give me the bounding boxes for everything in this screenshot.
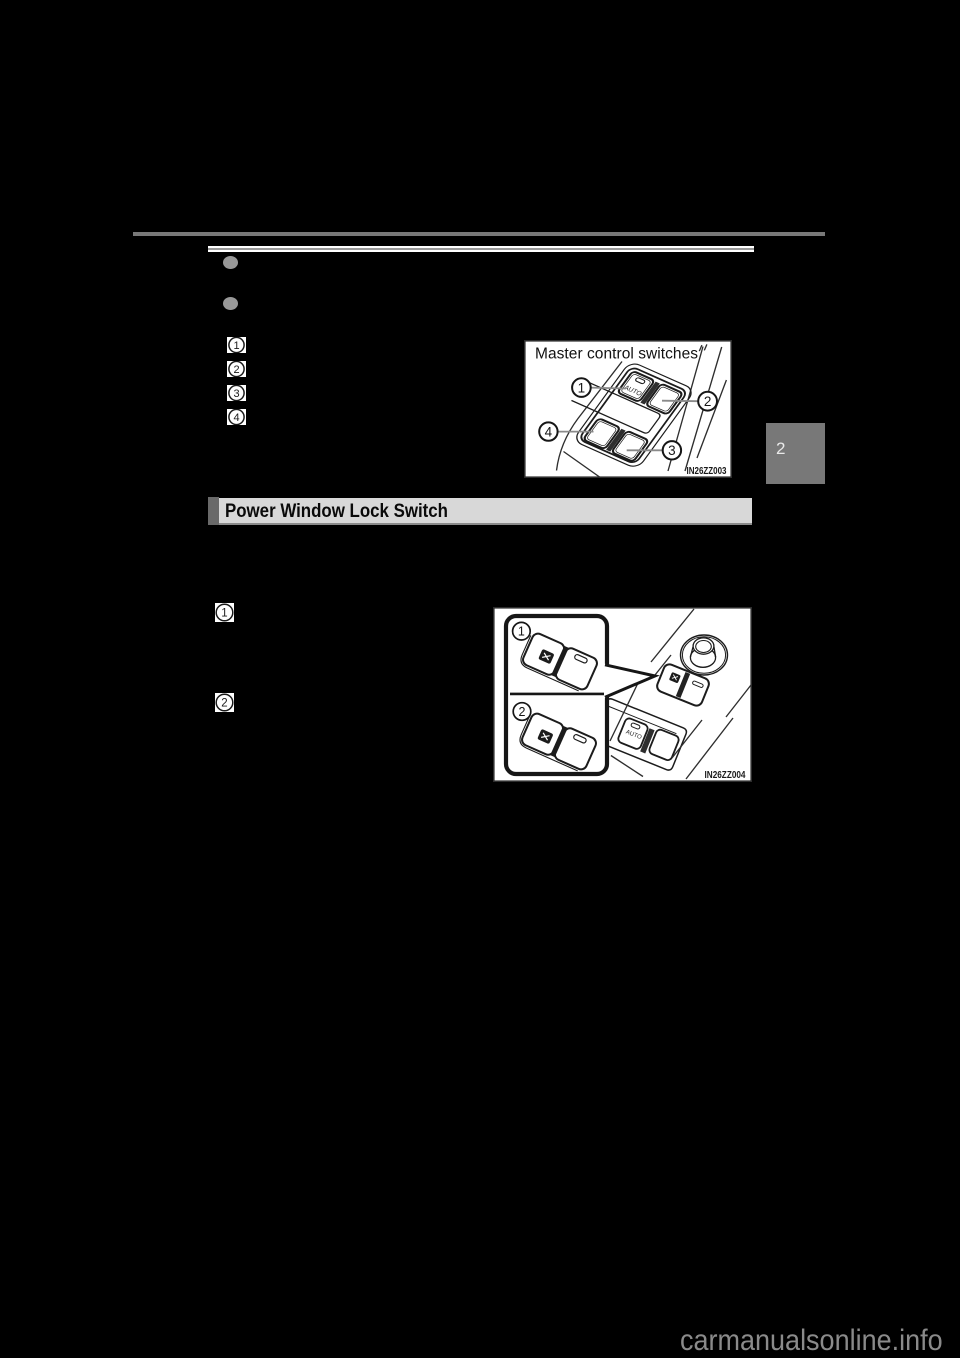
svg-text:2: 2	[519, 705, 526, 719]
svg-text:1: 1	[221, 608, 227, 620]
svg-text:IN26ZZ003: IN26ZZ003	[687, 466, 727, 477]
svg-text:4: 4	[545, 424, 553, 439]
svg-text:3: 3	[233, 388, 239, 400]
svg-text:2: 2	[704, 393, 712, 408]
svg-text:1: 1	[518, 625, 525, 639]
svg-text:2: 2	[221, 698, 227, 710]
svg-text:Master control switches: Master control switches	[535, 345, 698, 362]
svg-text:3: 3	[668, 443, 676, 458]
svg-text:IN26ZZ004: IN26ZZ004	[705, 770, 746, 781]
svg-text:1: 1	[578, 380, 586, 395]
svg-text:1: 1	[233, 340, 239, 352]
svg-text:4: 4	[233, 412, 239, 424]
svg-text:2: 2	[233, 364, 239, 376]
